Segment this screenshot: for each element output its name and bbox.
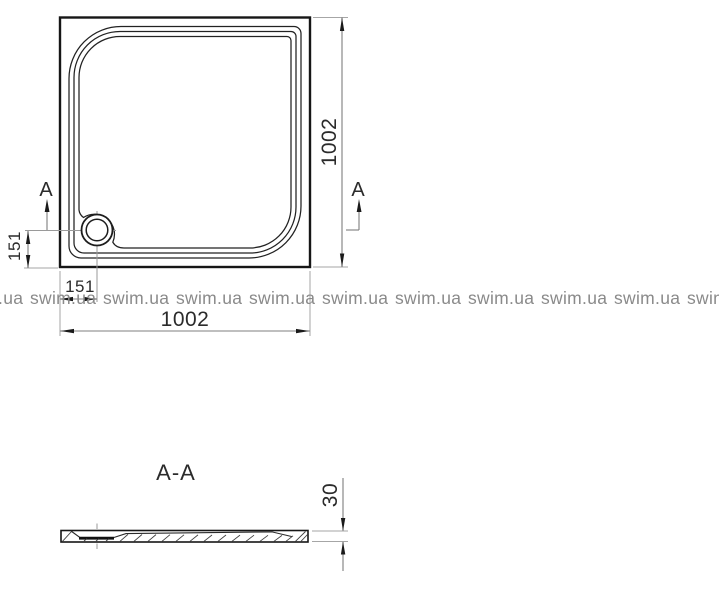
watermark-text: swim.ua xyxy=(687,288,719,309)
watermark-text: swim.ua xyxy=(176,288,242,309)
dim-height: 1002 xyxy=(318,18,344,268)
shower-tray-technical-drawing: 1002 1002 151 151 xyxy=(0,0,719,600)
section-title: A-A xyxy=(156,460,196,485)
section-view: A-A xyxy=(61,460,348,571)
section-marker-right: A xyxy=(346,179,365,230)
watermark-text: swim.ua xyxy=(30,288,96,309)
watermark-text: swim.ua xyxy=(614,288,680,309)
watermark-text: swim.ua xyxy=(322,288,388,309)
dim-width-label: 1002 xyxy=(161,308,210,331)
section-marker-right-label: A xyxy=(351,179,365,201)
watermark-text: swim.ua xyxy=(0,288,23,309)
dim-height-label: 1002 xyxy=(318,118,341,167)
dim-width: 1002 xyxy=(60,308,310,333)
watermark-text: swim.ua xyxy=(103,288,169,309)
dim-thickness: 30 xyxy=(312,478,348,571)
dim-drain-offset-y-label: 151 xyxy=(5,231,24,261)
dim-thickness-label: 30 xyxy=(319,483,342,507)
watermark-text: swim.ua xyxy=(541,288,607,309)
watermark-text: swim.ua xyxy=(395,288,461,309)
watermark-text: swim.ua xyxy=(468,288,534,309)
section-marker-left: A xyxy=(39,179,53,230)
dim-drain-offset-y: 151 xyxy=(5,231,30,268)
section-marker-left-label: A xyxy=(39,179,53,201)
watermark-text: swim.ua xyxy=(249,288,315,309)
